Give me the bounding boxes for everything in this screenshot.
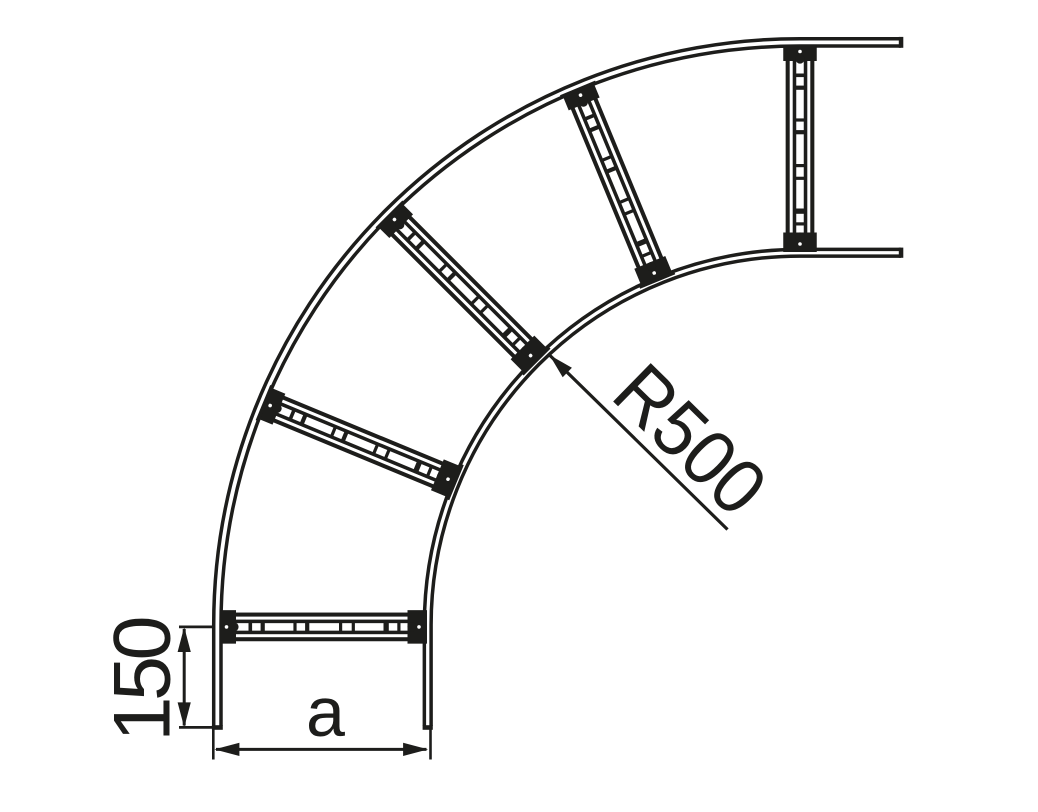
svg-text:150: 150 [97,619,187,742]
svg-text:R500: R500 [597,347,784,532]
svg-text:a: a [306,673,345,751]
